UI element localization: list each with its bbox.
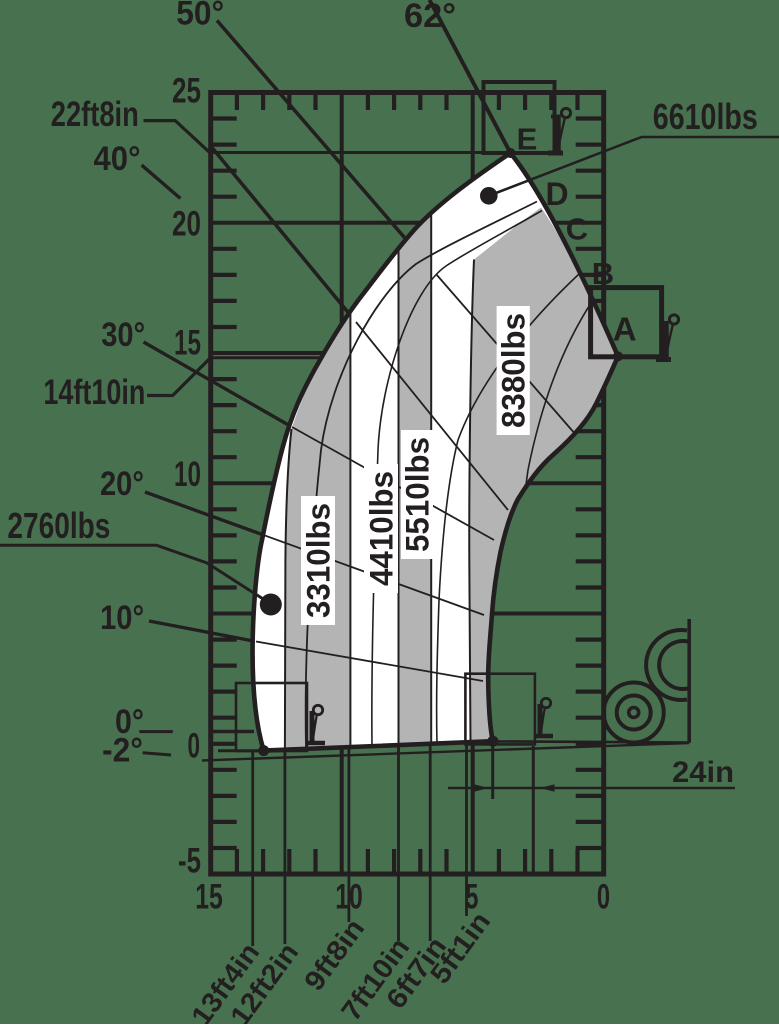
svg-text:20: 20 — [172, 204, 201, 244]
svg-text:0: 0 — [188, 726, 201, 766]
svg-text:-2°: -2° — [102, 732, 143, 770]
svg-text:15: 15 — [174, 322, 201, 362]
svg-text:4410lbs: 4410lbs — [363, 471, 399, 586]
svg-text:B: B — [592, 256, 614, 291]
svg-text:6610lbs: 6610lbs — [653, 96, 758, 137]
svg-text:3310lbs: 3310lbs — [300, 503, 336, 618]
svg-text:30°: 30° — [101, 316, 145, 354]
svg-text:22ft8in: 22ft8in — [51, 95, 139, 134]
svg-text:40°: 40° — [94, 140, 141, 178]
svg-text:10°: 10° — [100, 599, 144, 637]
svg-text:-5: -5 — [178, 841, 201, 881]
svg-text:24in: 24in — [672, 756, 734, 789]
svg-text:2760lbs: 2760lbs — [7, 505, 110, 546]
svg-text:8380lbs: 8380lbs — [496, 313, 532, 428]
svg-text:E: E — [517, 122, 538, 157]
svg-text:D: D — [545, 176, 568, 212]
svg-text:0: 0 — [597, 877, 610, 917]
svg-text:15: 15 — [195, 877, 223, 917]
svg-text:10: 10 — [174, 454, 201, 494]
svg-text:C: C — [566, 212, 588, 247]
svg-text:62°: 62° — [404, 0, 456, 35]
svg-text:A: A — [613, 311, 637, 348]
svg-text:25: 25 — [172, 70, 201, 110]
svg-text:14ft10in: 14ft10in — [43, 373, 145, 412]
svg-text:50°: 50° — [176, 0, 224, 33]
svg-text:20°: 20° — [100, 465, 144, 503]
svg-text:10: 10 — [335, 877, 363, 917]
svg-text:5510lbs: 5510lbs — [399, 437, 435, 552]
